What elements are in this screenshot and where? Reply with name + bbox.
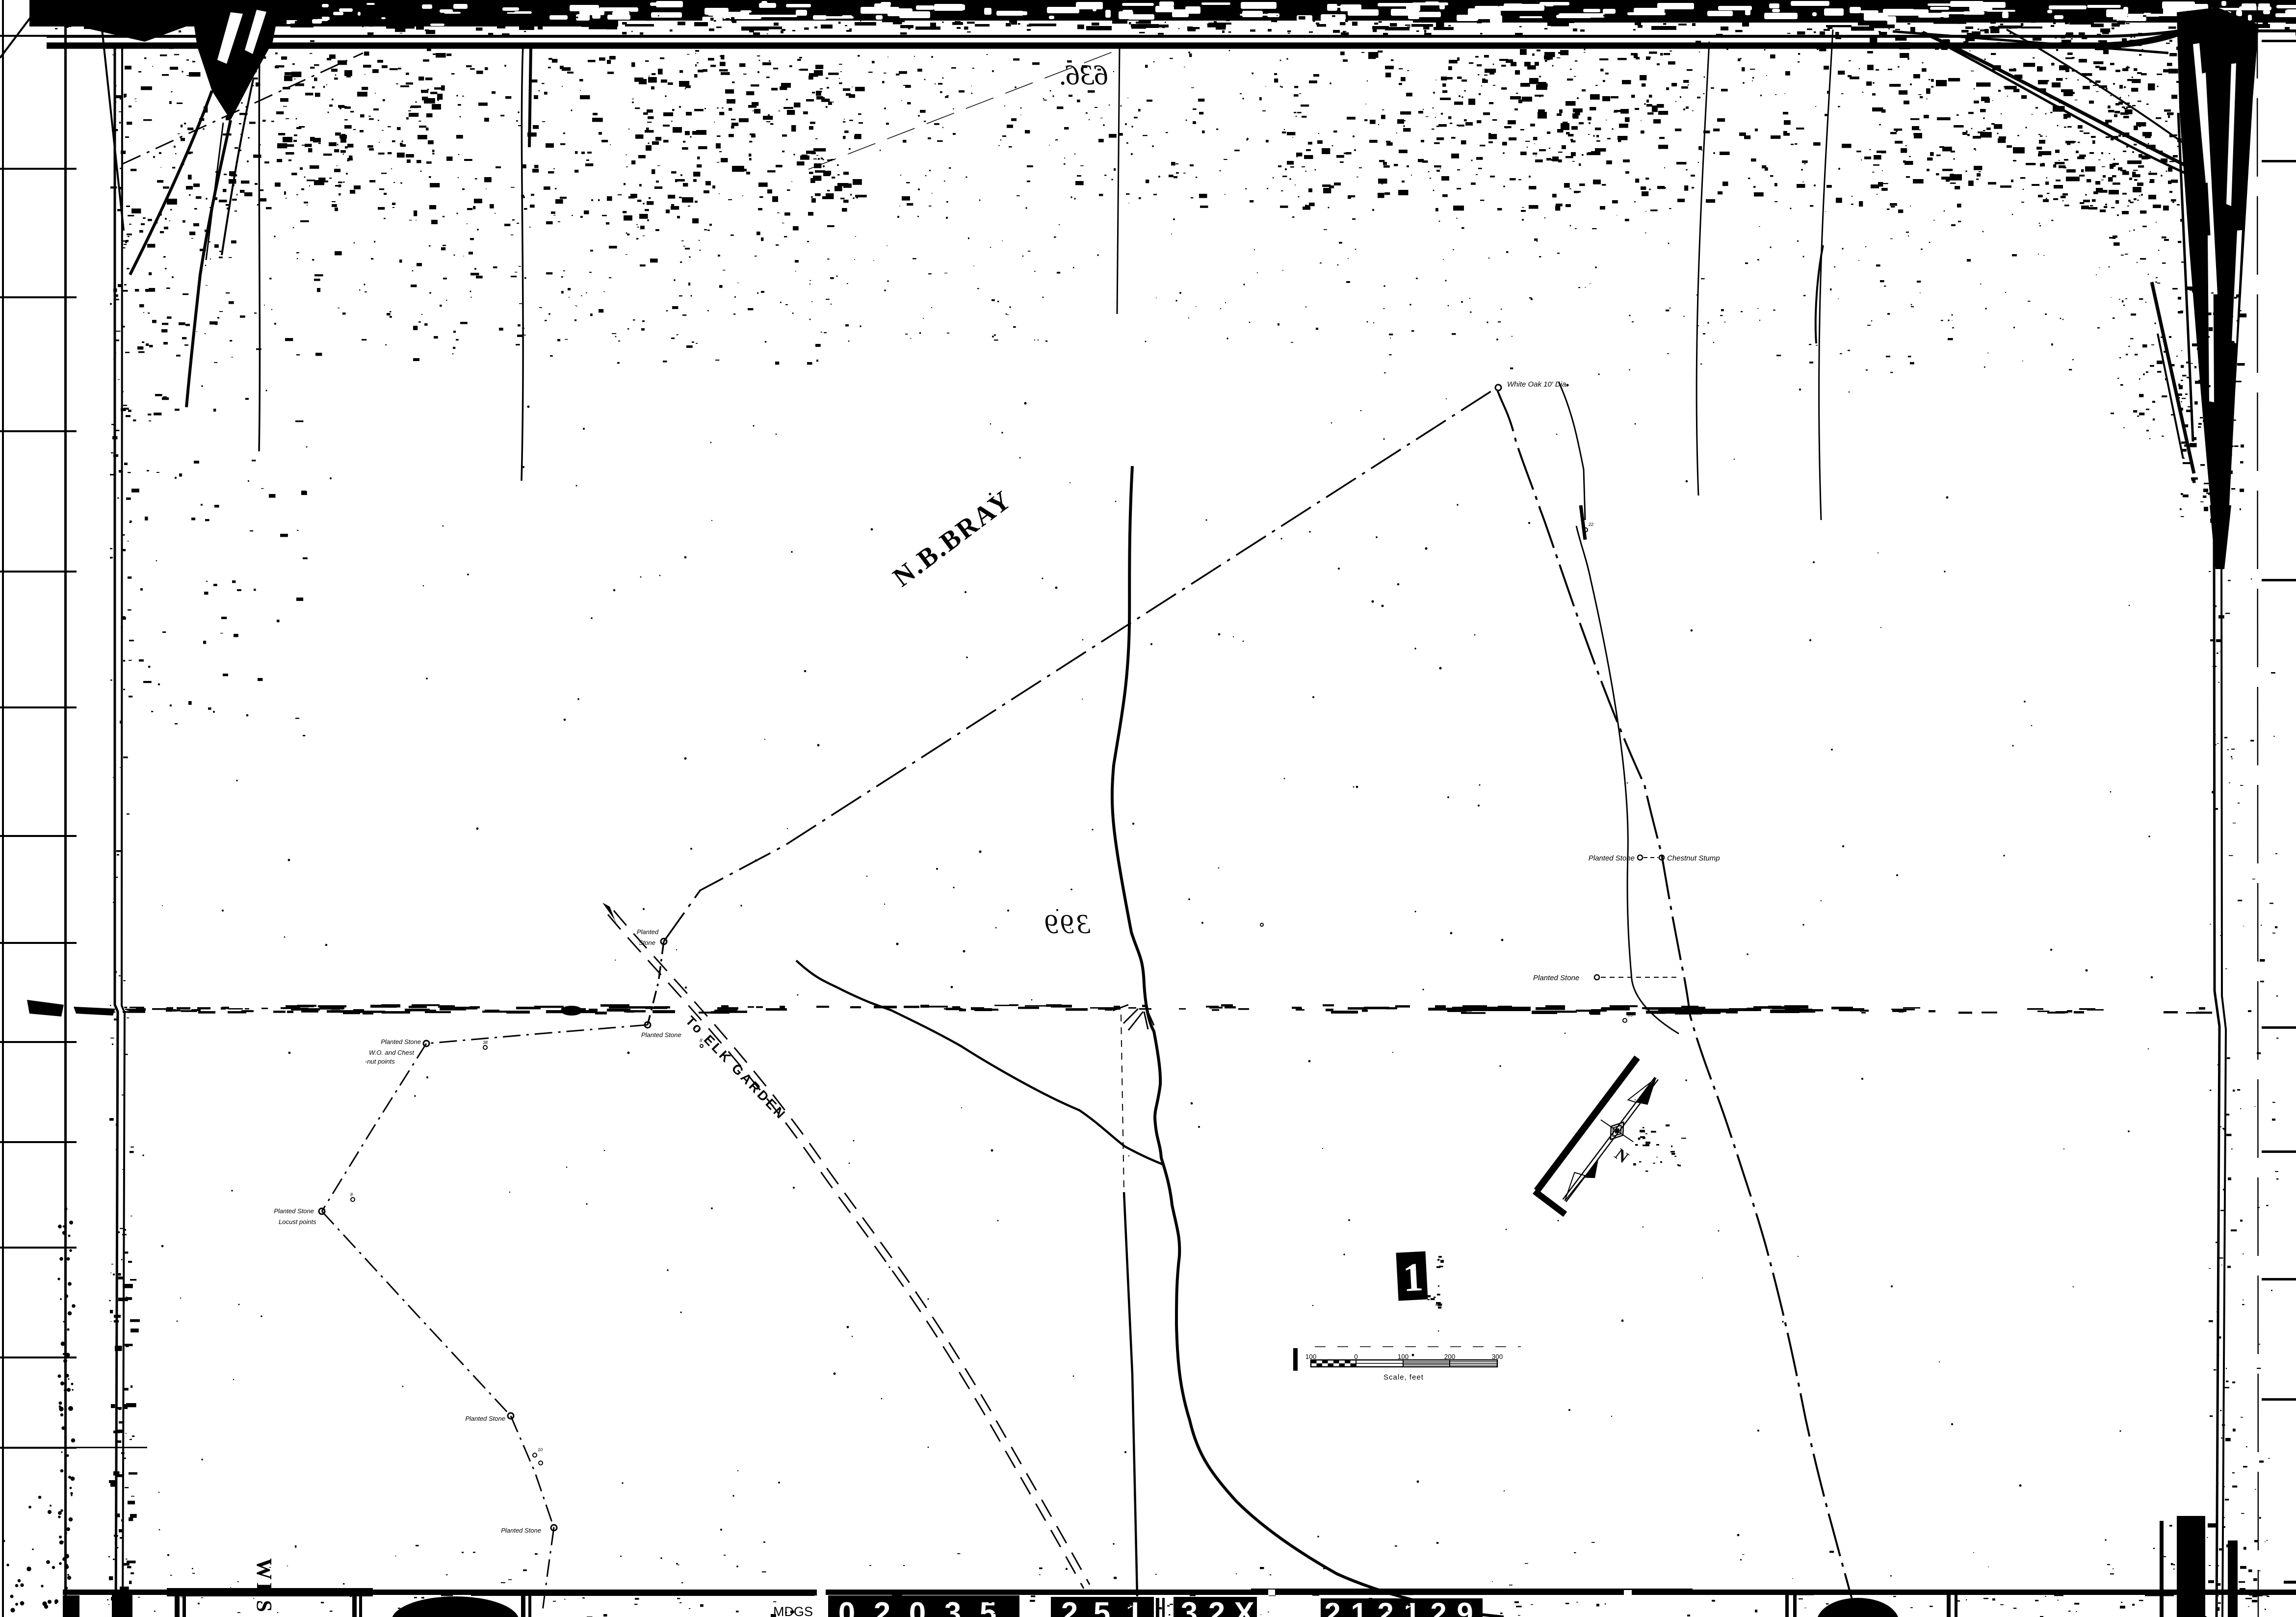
svg-text:0: 0 <box>838 1596 855 1617</box>
svg-text:3: 3 <box>1181 1596 1198 1617</box>
svg-text:Locust points: Locust points <box>279 1218 316 1226</box>
svg-text:636.: 636. <box>1059 59 1109 91</box>
svg-text:10: 10 <box>538 1447 543 1452</box>
svg-text:9: 9 <box>1457 1597 1473 1617</box>
svg-text:1: 1 <box>1404 1597 1420 1617</box>
svg-text:5: 5 <box>1094 1596 1110 1617</box>
svg-text:2: 2 <box>874 1596 890 1617</box>
svg-text:2: 2 <box>1061 1596 1078 1617</box>
svg-text:2: 2 <box>1377 1597 1393 1617</box>
svg-text:1: 1 <box>1402 1254 1424 1300</box>
svg-text:8: 8 <box>350 1192 353 1197</box>
svg-text:Planted Stone: Planted Stone <box>1589 854 1635 862</box>
svg-text:2: 2 <box>1430 1597 1446 1617</box>
svg-text:Planted Stone: Planted Stone <box>501 1527 541 1534</box>
svg-text:Planted Stone: Planted Stone <box>641 1031 681 1039</box>
svg-text:WES: WES <box>252 1558 276 1615</box>
svg-text:Chestnut Stump: Chestnut Stump <box>1667 854 1720 862</box>
svg-text:-nut points: -nut points <box>365 1058 395 1065</box>
svg-text:85: 85 <box>1628 1013 1633 1017</box>
svg-text:Planted Stone: Planted Stone <box>381 1038 421 1045</box>
svg-text:Planted Stone: Planted Stone <box>1533 974 1579 982</box>
svg-text:0: 0 <box>909 1596 926 1617</box>
svg-text:2: 2 <box>1208 1596 1225 1617</box>
svg-text:Scale, feet: Scale, feet <box>1383 1373 1424 1382</box>
svg-text:Planted Stone: Planted Stone <box>465 1415 505 1422</box>
svg-text:2: 2 <box>1324 1597 1340 1617</box>
svg-text:1: 1 <box>1351 1597 1367 1617</box>
svg-text:Planted Stone: Planted Stone <box>274 1207 314 1215</box>
svg-text:38: 38 <box>483 1040 488 1045</box>
svg-text:Planted: Planted <box>637 928 659 936</box>
svg-text:W.O. and Chest: W.O. and Chest <box>369 1049 415 1056</box>
svg-text:22: 22 <box>1588 522 1593 527</box>
svg-text:3: 3 <box>944 1596 961 1617</box>
svg-text:399: 399 <box>1043 909 1091 939</box>
